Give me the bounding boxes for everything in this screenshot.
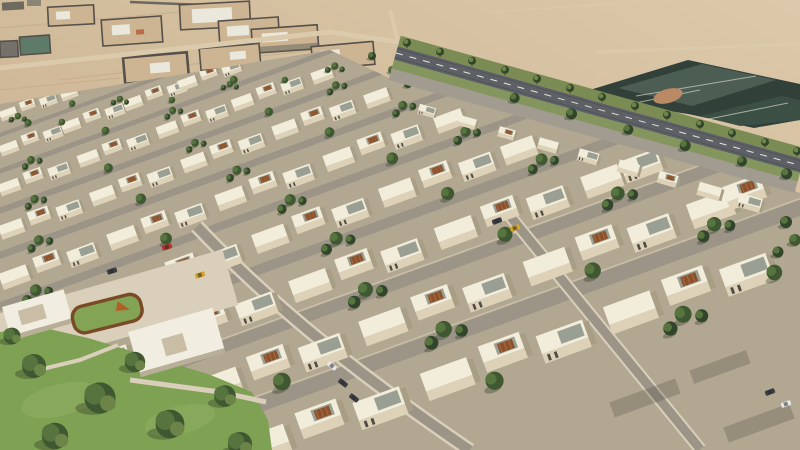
walled-plot bbox=[101, 16, 163, 46]
walled-plot-gray bbox=[0, 41, 18, 58]
walled-plot bbox=[48, 5, 95, 26]
aerial-community-render bbox=[0, 0, 800, 450]
far-structure bbox=[2, 1, 24, 10]
render-canvas bbox=[0, 0, 800, 450]
walled-plot-green bbox=[19, 35, 50, 55]
far-structure bbox=[27, 0, 41, 6]
